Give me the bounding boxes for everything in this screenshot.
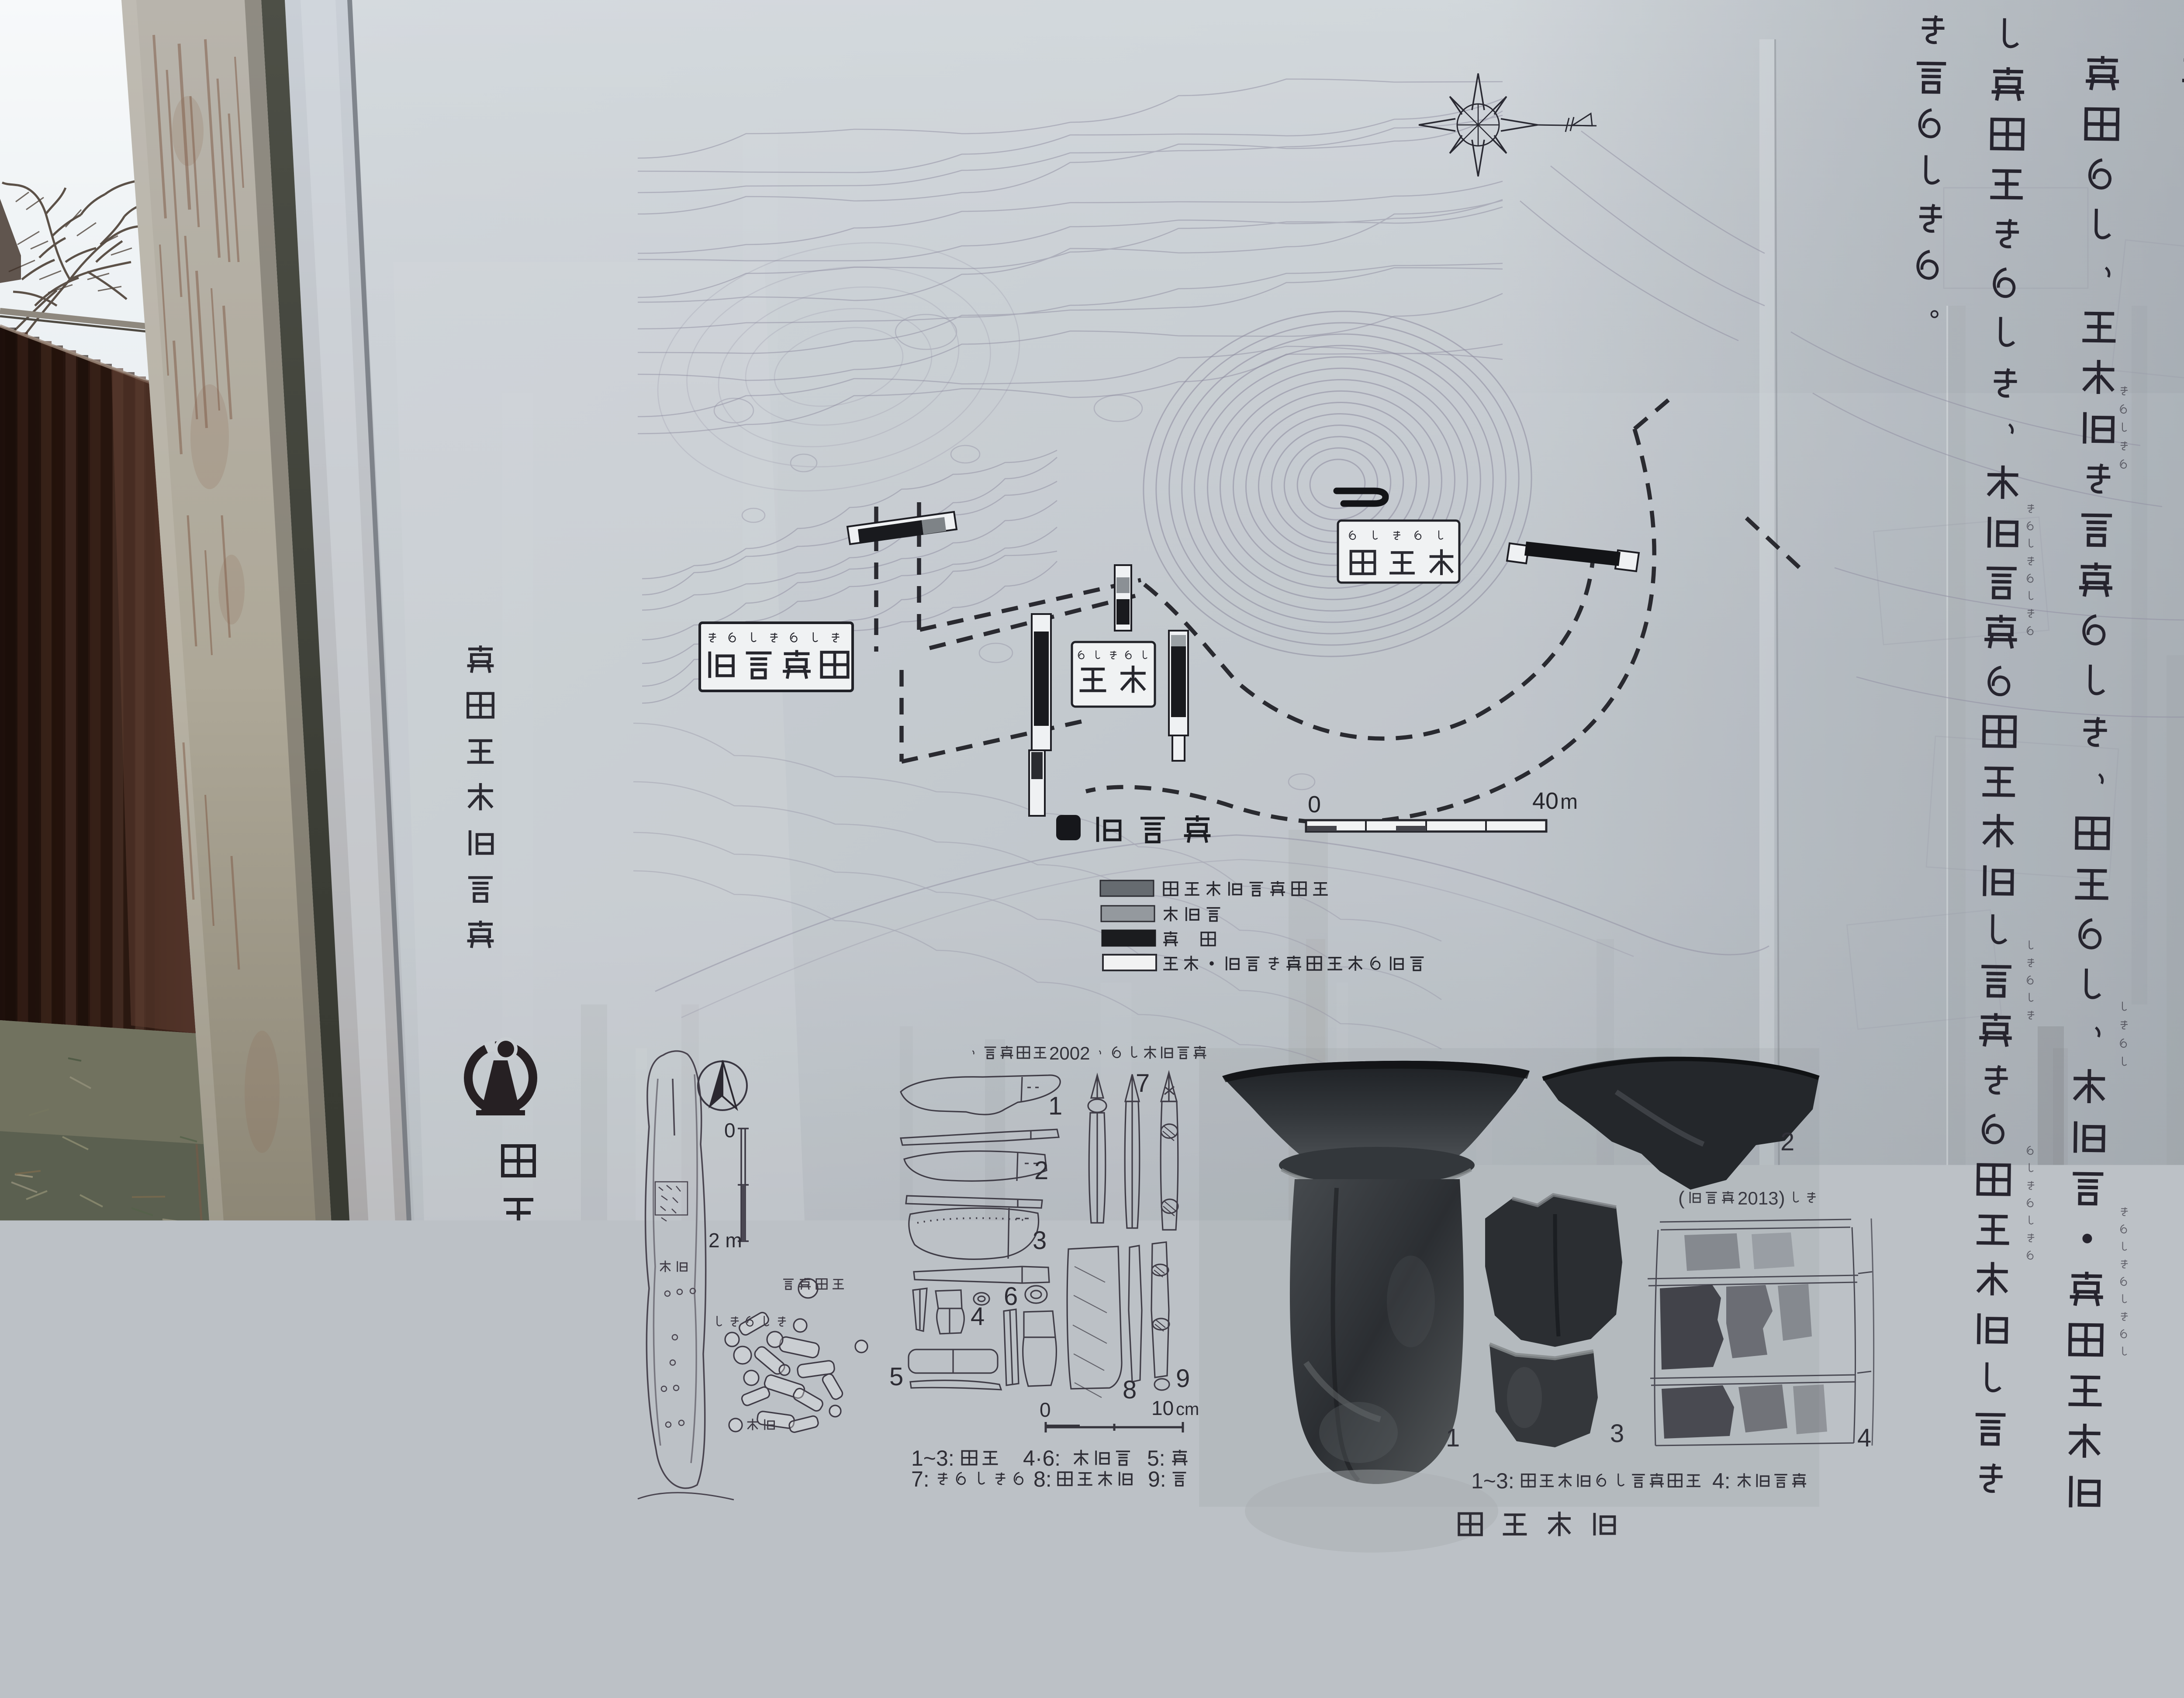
svg-text:40: 40 <box>1532 788 1559 814</box>
svg-text:m: m <box>1560 790 1578 814</box>
svg-text:7:: 7: <box>911 1467 930 1491</box>
svg-text:0: 0 <box>724 1119 736 1142</box>
svg-text:4: 4 <box>971 1302 985 1331</box>
svg-text:cm: cm <box>1176 1400 1199 1419</box>
svg-text:3: 3 <box>1610 1419 1624 1448</box>
svg-text:2013: 2013 <box>1738 1188 1778 1208</box>
svg-text:8: 8 <box>1123 1376 1137 1404</box>
svg-text:7: 7 <box>1136 1069 1150 1097</box>
svg-text:6: 6 <box>1004 1282 1018 1311</box>
svg-text:1: 1 <box>1048 1092 1062 1120</box>
svg-text:2: 2 <box>1780 1128 1794 1156</box>
svg-text:9:: 9: <box>1148 1467 1166 1491</box>
svg-text:4:: 4: <box>1712 1469 1731 1493</box>
svg-text:1~3:: 1~3: <box>1471 1469 1514 1493</box>
svg-text:4: 4 <box>1857 1424 1871 1452</box>
svg-text:3: 3 <box>1033 1226 1047 1255</box>
svg-text:2 m: 2 m <box>708 1229 742 1252</box>
svg-text:(: ( <box>1678 1187 1685 1209</box>
svg-text:0: 0 <box>1308 791 1321 818</box>
svg-text:1: 1 <box>1446 1424 1460 1452</box>
svg-text:2002: 2002 <box>1049 1043 1090 1063</box>
svg-text:9: 9 <box>1176 1364 1190 1393</box>
svg-text:5: 5 <box>889 1363 903 1391</box>
svg-text:): ) <box>1779 1187 1785 1209</box>
svg-text:0: 0 <box>1040 1398 1051 1421</box>
svg-text:8:: 8: <box>1033 1467 1052 1491</box>
svg-text:10: 10 <box>1151 1397 1174 1419</box>
svg-text:2: 2 <box>1034 1156 1048 1185</box>
